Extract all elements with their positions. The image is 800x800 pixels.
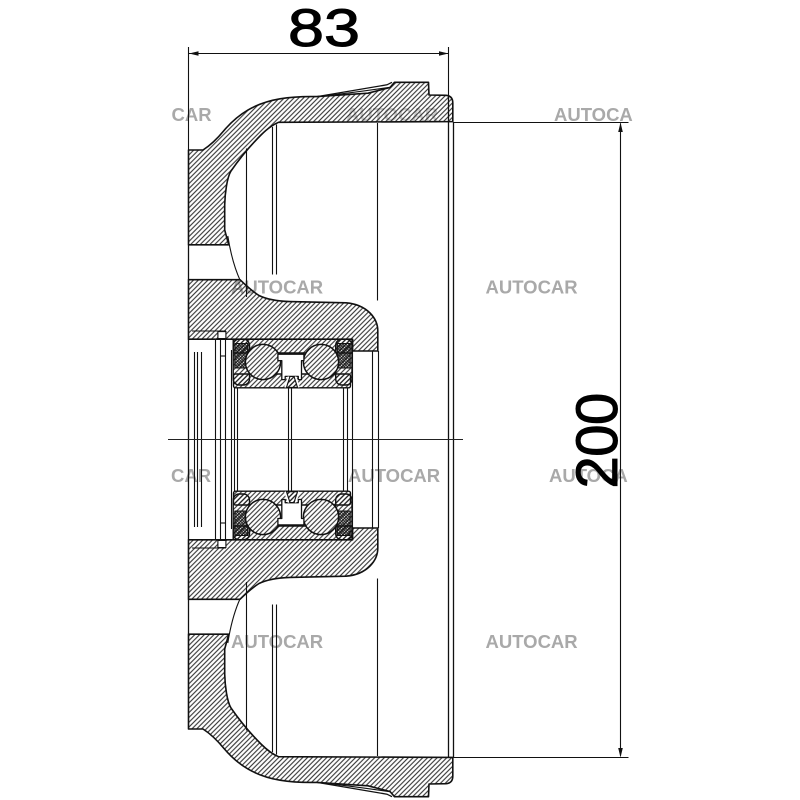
svg-text:AUTOCAR: AUTOCAR [231, 631, 323, 652]
svg-text:AUTOCAR: AUTOCAR [348, 465, 440, 486]
svg-text:AUTOCA: AUTOCA [554, 104, 633, 125]
svg-text:CAR: CAR [172, 104, 212, 125]
svg-text:83: 83 [288, 0, 360, 58]
svg-text:200: 200 [565, 393, 630, 488]
svg-text:AUTOCAR: AUTOCAR [486, 631, 578, 652]
svg-text:CAR: CAR [171, 465, 211, 486]
svg-text:AUTOCAR: AUTOCAR [486, 277, 578, 298]
